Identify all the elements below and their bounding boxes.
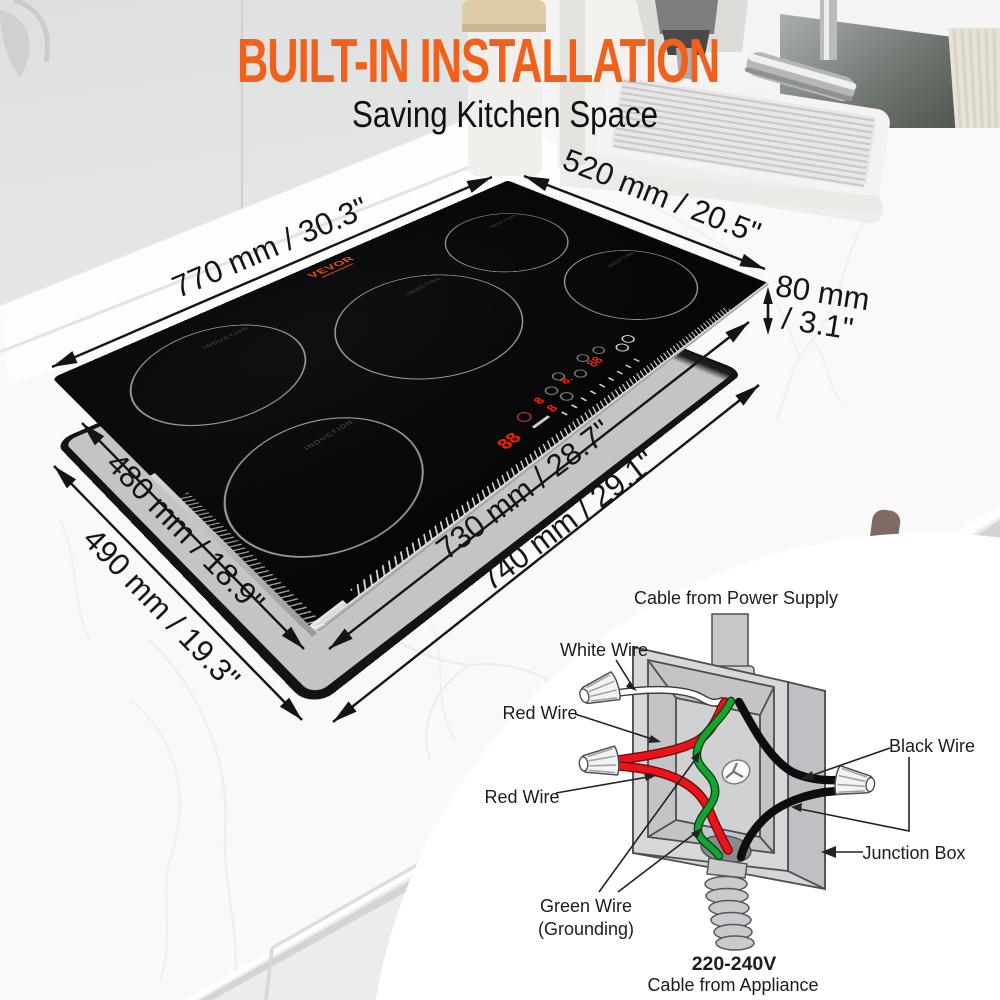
svg-text:Black Wire: Black Wire	[889, 736, 975, 756]
svg-text:Red Wire: Red Wire	[484, 787, 559, 807]
svg-text:Junction Box: Junction Box	[862, 843, 965, 863]
svg-text:Green Wire: Green Wire	[540, 896, 632, 916]
svg-text:220-240V: 220-240V	[692, 953, 777, 975]
svg-text:White Wire: White Wire	[560, 640, 648, 660]
svg-text:(Grounding): (Grounding)	[538, 919, 634, 939]
svg-text:Cable from Appliance: Cable from Appliance	[647, 975, 818, 995]
svg-text:Cable from Power Supply: Cable from Power Supply	[634, 588, 838, 608]
svg-text:Red Wire: Red Wire	[502, 703, 577, 723]
